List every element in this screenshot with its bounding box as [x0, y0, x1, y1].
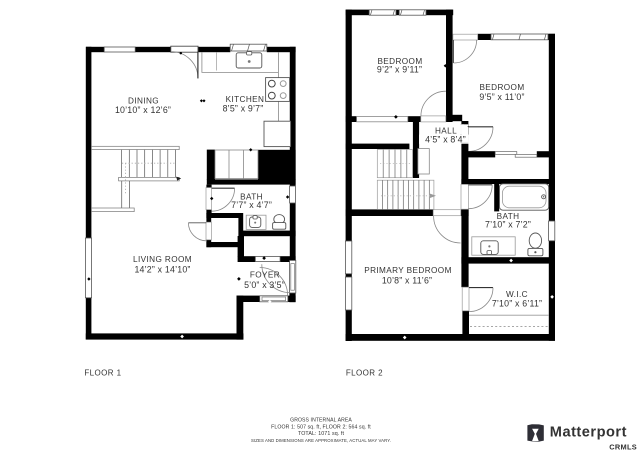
svg-text:CRMLS: CRMLS — [609, 443, 637, 452]
svg-text:4’5” x 8’4”: 4’5” x 8’4” — [425, 135, 466, 145]
svg-text:8’5” x 9’7”: 8’5” x 9’7” — [223, 103, 264, 113]
svg-text:9’2” x 9’11”: 9’2” x 9’11” — [377, 65, 422, 75]
svg-text:GROSS INTERNAL AREA: GROSS INTERNAL AREA — [290, 418, 352, 424]
svg-text:SIZES AND DIMENSIONS ARE APPRO: SIZES AND DIMENSIONS ARE APPROXIMATE, AC… — [251, 438, 391, 443]
svg-text:LIVING ROOM: LIVING ROOM — [133, 255, 192, 264]
svg-text:FLOOR 2: FLOOR 2 — [346, 368, 383, 377]
svg-text:PRIMARY BEDROOM: PRIMARY BEDROOM — [364, 266, 452, 275]
svg-text:FLOOR 1: FLOOR 1 — [84, 368, 121, 377]
svg-text:TOTAL: 1071 sq. ft: TOTAL: 1071 sq. ft — [298, 431, 344, 437]
svg-text:7’7” x 4’7”: 7’7” x 4’7” — [231, 200, 272, 210]
svg-text:FLOOR 1: 507 sq. ft, FLOOR 2:: FLOOR 1: 507 sq. ft, FLOOR 2: 564 sq. ft — [271, 425, 371, 431]
svg-text:14’2” x 14’10”: 14’2” x 14’10” — [134, 264, 190, 274]
svg-text:7’10” x 6’11”: 7’10” x 6’11” — [492, 298, 542, 308]
svg-text:9’5” x 11’0”: 9’5” x 11’0” — [479, 92, 524, 102]
svg-text:10’8” x 11’6”: 10’8” x 11’6” — [382, 275, 432, 285]
svg-text:5’0” x 3’5”: 5’0” x 3’5” — [244, 280, 285, 290]
svg-text:FOYER: FOYER — [250, 271, 280, 280]
svg-text:BEDROOM: BEDROOM — [479, 83, 524, 92]
svg-text:7’10” x 7’2”: 7’10” x 7’2” — [485, 219, 531, 229]
svg-text:10’10” x 12’6”: 10’10” x 12’6” — [115, 105, 171, 115]
svg-text:Matterport: Matterport — [550, 424, 627, 440]
